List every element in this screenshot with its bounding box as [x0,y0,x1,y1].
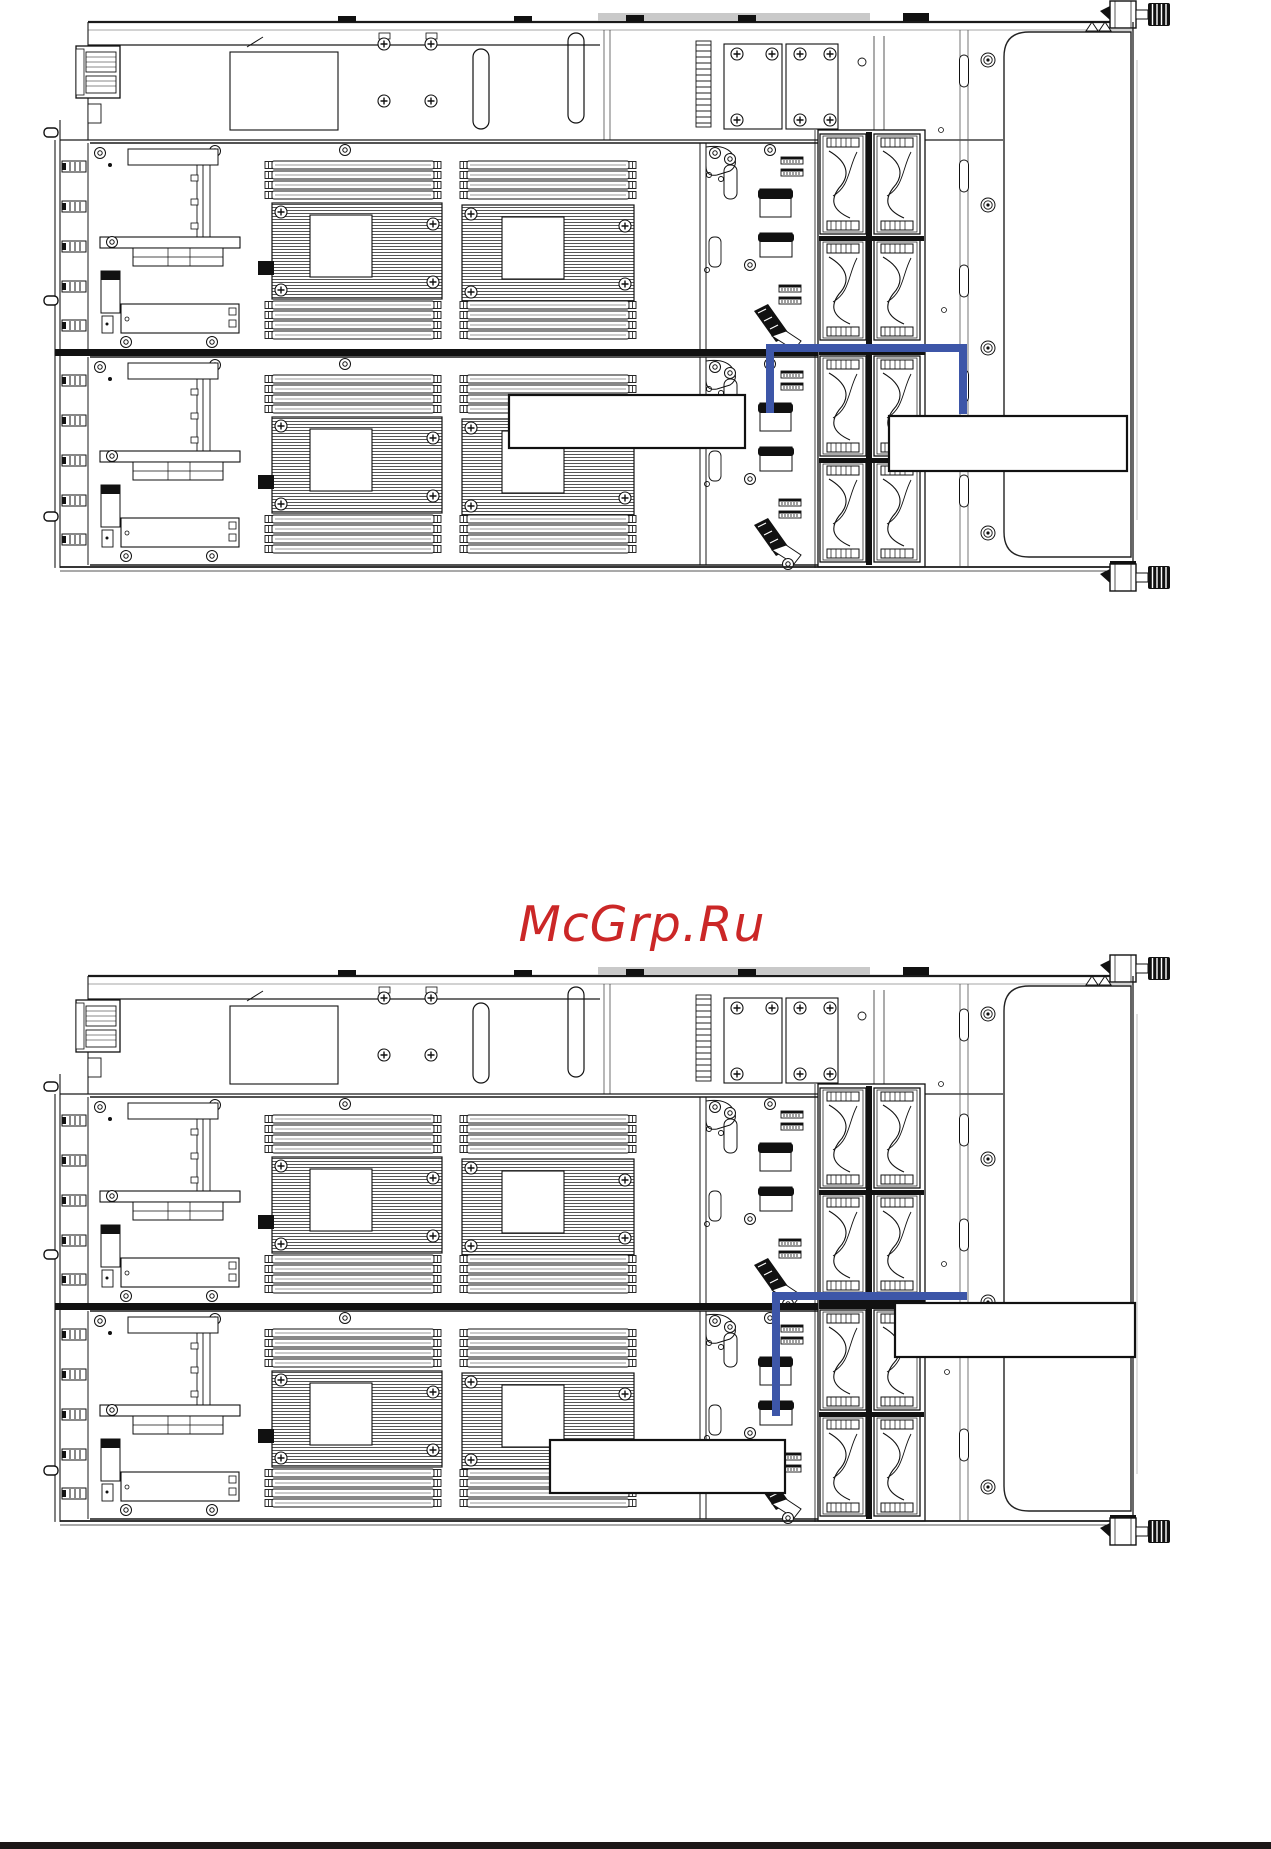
figure-2 [44,955,1170,1545]
manual-page: McGrp.Ru [0,0,1271,1849]
page-canvas: McGrp.Ru [0,0,1271,1849]
callout-box [895,1303,1135,1357]
callout-box [889,416,1127,471]
figure-1 [44,1,1170,591]
callout-box [550,1440,785,1493]
footer-bar [0,1842,1271,1849]
watermark-text: McGrp.Ru [518,896,765,953]
callout-box [509,395,745,448]
